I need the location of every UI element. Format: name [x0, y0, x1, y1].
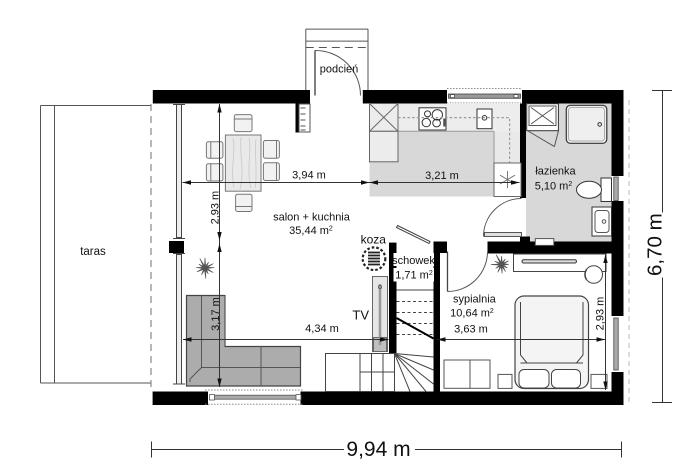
svg-text:2,93 m: 2,93 m: [210, 191, 222, 225]
svg-text:3,63 m: 3,63 m: [454, 324, 488, 336]
svg-text:taras: taras: [80, 246, 106, 258]
svg-text:3,21 m: 3,21 m: [425, 170, 459, 182]
svg-text:2,93 m: 2,93 m: [594, 297, 606, 331]
svg-text:schowek: schowek: [392, 255, 435, 267]
svg-text:salon + kuchnia: salon + kuchnia: [273, 212, 351, 224]
svg-text:35,44 m2: 35,44 m2: [289, 225, 333, 237]
svg-text:6,70 m: 6,70 m: [644, 213, 667, 276]
svg-text:koza: koza: [361, 233, 387, 247]
svg-text:9,94 m: 9,94 m: [346, 438, 410, 461]
svg-text:3,94 m: 3,94 m: [292, 170, 326, 182]
svg-text:5,10 m2: 5,10 m2: [535, 181, 573, 193]
svg-text:3,17 m: 3,17 m: [210, 297, 222, 331]
svg-text:sypialnia: sypialnia: [453, 294, 497, 306]
svg-text:TV: TV: [352, 307, 369, 322]
svg-text:łazienka: łazienka: [535, 165, 576, 177]
svg-text:10,64 m2: 10,64 m2: [450, 308, 494, 320]
svg-text:podcień: podcień: [320, 64, 359, 76]
svg-text:4,34 m: 4,34 m: [305, 323, 339, 335]
svg-text:1,71 m2: 1,71 m2: [395, 269, 433, 281]
